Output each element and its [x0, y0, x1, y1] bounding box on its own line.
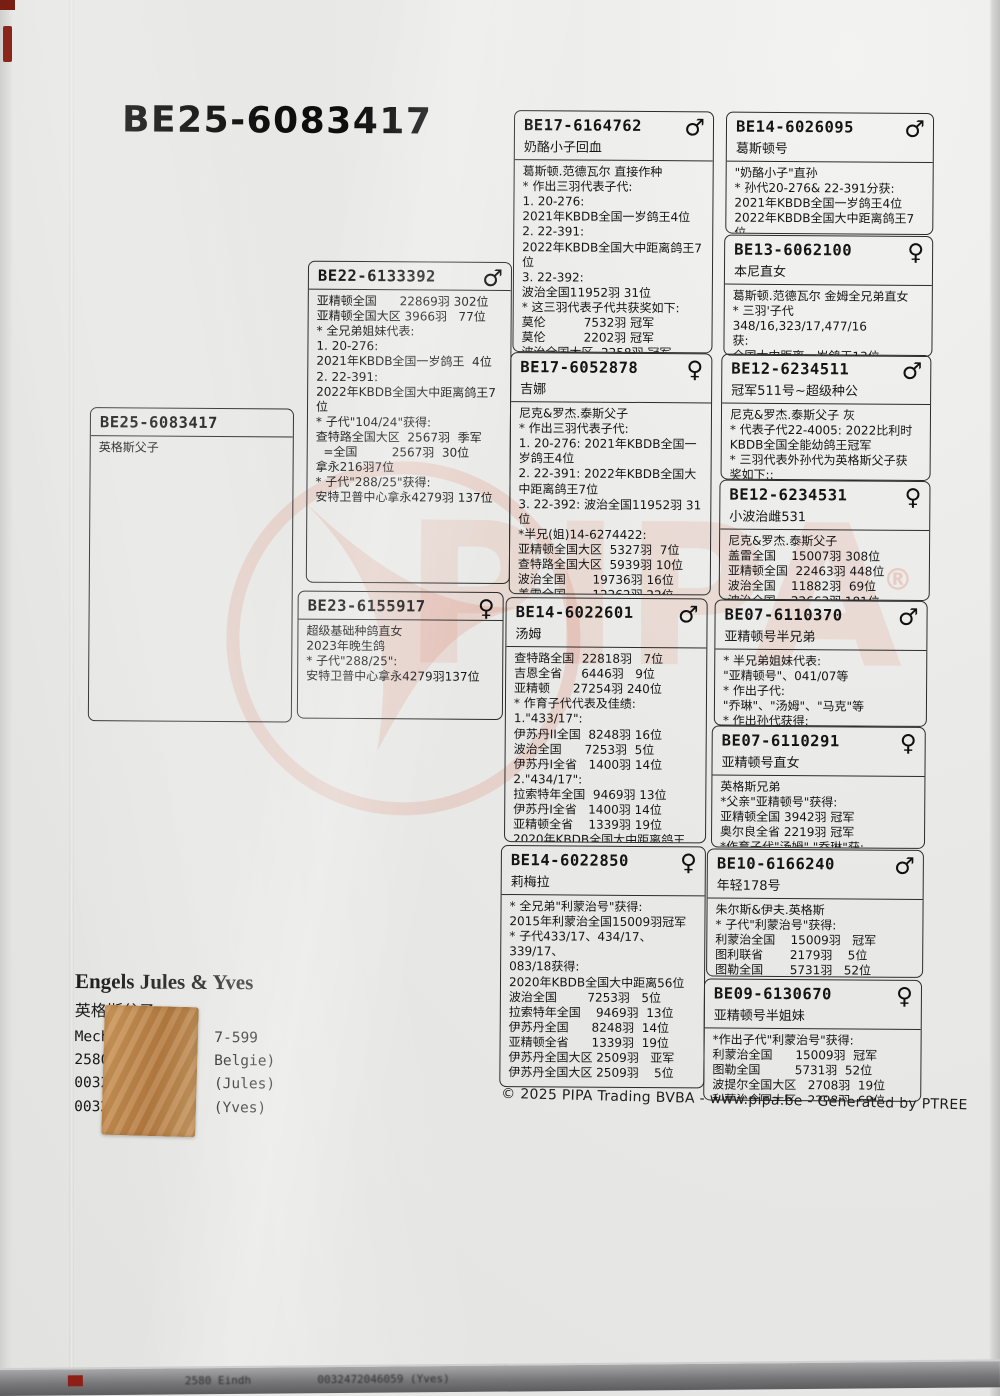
owner-name: Engels Jules & Yves	[75, 969, 276, 995]
pedigree-box-g4-6: BE07-6110291 亚精顿号直女 ♀ 英格斯兄弟 *父亲"亚精顿号"获得:…	[711, 725, 926, 848]
ring-number: BE22-6133392	[318, 267, 477, 286]
pigeon-name: 亚精顿号半姐妹	[714, 1005, 887, 1025]
box-header: BE22-6133392 ♂	[309, 262, 511, 291]
pigeon-name: 小波治雌531	[729, 506, 895, 526]
pigeon-details: 尼克&罗杰.泰斯父子 灰 * 代表子代22-4005: 2022比利时 KBDB…	[721, 404, 930, 481]
female-symbol-icon: ♀	[904, 487, 921, 510]
pigeon-details: 尼克&罗杰.泰斯父子 盖雷全国 15007羽 308位 亚精顿全国 22463羽…	[720, 530, 930, 601]
pigeon-details: 英格斯父子	[91, 436, 293, 462]
pedigree-box-dam: BE23-6155917 ♀ 超级基础种鸽直女 2023年晚生鸽 * 子代"28…	[297, 591, 504, 720]
ring-number: BE09-6130670	[714, 985, 887, 1004]
pigeon-details: 超级基础种鸽直女 2023年晚生鸽 * 子代"288/25": 安特卫普中心拿永…	[298, 620, 502, 691]
box-header: BE14-6022601 汤姆 ♂	[506, 598, 706, 648]
female-symbol-icon: ♀	[478, 598, 495, 621]
pigeon-name: 冠军511号~超级种公	[731, 380, 896, 400]
photo-edge-left	[0, 0, 13, 1396]
female-symbol-icon: ♀	[680, 852, 697, 875]
box-header: BE09-6130670 亚精顿号半姐妹 ♀	[705, 979, 921, 1030]
female-symbol-icon: ♀	[907, 242, 924, 265]
pigeon-name: 本尼直女	[734, 261, 898, 281]
ring-number: BE17-6052878	[520, 358, 677, 377]
box-header: BE07-6110291 亚精顿号直女 ♀	[712, 726, 924, 776]
pigeon-name: 葛斯顿号	[736, 138, 899, 158]
male-symbol-icon: ♂	[482, 268, 503, 291]
pedigree-photo: PIPA ® BE25-6083417 BE25-6083417 英格斯父子 B…	[0, 0, 1000, 1396]
pigeon-name: 亚精顿号半兄弟	[724, 626, 892, 646]
box-header: BE25-6083417	[91, 408, 293, 437]
red-mark-bottom	[68, 1375, 83, 1386]
male-symbol-icon: ♂	[898, 607, 919, 630]
pigeon-name: 奶酪小子回血	[524, 136, 679, 156]
ring-number: BE10-6166240	[717, 855, 889, 874]
pigeon-name: 年轻178号	[717, 875, 889, 895]
pedigree-box-g3-2: BE17-6052878 吉娜 ♀ 尼克&罗杰.泰斯父子 * 作出三羽代表子代:…	[509, 352, 713, 595]
ring-number: BE07-6110370	[725, 606, 893, 625]
box-header: BE23-6155917 ♀	[299, 592, 503, 621]
ring-number: BE07-6110291	[722, 732, 891, 751]
box-header: BE14-6026095 葛斯顿号 ♂	[727, 113, 933, 163]
female-symbol-icon: ♀	[900, 733, 917, 756]
pedigree-box-subject: BE25-6083417 英格斯父子	[88, 407, 294, 722]
photo-edge-right	[989, 0, 1000, 1396]
box-header: BE17-6164762 奶酪小子回血 ♂	[515, 111, 713, 161]
ring-number: BE17-6164762	[524, 116, 679, 135]
female-symbol-icon: ♀	[686, 359, 703, 382]
underlying-document-text: 2580 Eindh 0032472046059 (Yves)	[185, 1372, 450, 1387]
tape-sticker	[101, 1005, 199, 1138]
pigeon-name: 吉娜	[520, 378, 677, 398]
pigeon-details: 葛斯顿.范德瓦尔 直接作种 * 作出三羽代表子代: 1. 20-276: 202…	[513, 160, 713, 353]
pedigree-box-g3-1: BE17-6164762 奶酪小子回血 ♂ 葛斯顿.范德瓦尔 直接作种 * 作出…	[512, 110, 714, 353]
box-header: BE07-6110370 亚精顿号半兄弟 ♂	[715, 601, 926, 651]
ring-number: BE12-6234511	[731, 360, 896, 379]
male-symbol-icon: ♂	[902, 361, 923, 384]
male-symbol-icon: ♂	[894, 856, 915, 879]
ring-number: BE14-6022601	[516, 603, 673, 622]
pedigree-box-g4-4: BE12-6234531 小波治雌531 ♀ 尼克&罗杰.泰斯父子 盖雷全国 1…	[719, 480, 931, 601]
pedigree-box-g4-3: BE12-6234511 冠军511号~超级种公 ♂ 尼克&罗杰.泰斯父子 灰 …	[721, 354, 932, 481]
box-header: BE10-6166240 年轻178号 ♂	[708, 849, 923, 899]
box-header: BE12-6234531 小波治雌531 ♀	[720, 481, 929, 531]
female-symbol-icon: ♀	[896, 986, 913, 1009]
box-header: BE17-6052878 吉娜 ♀	[511, 353, 711, 403]
red-mark-top	[0, 0, 15, 10]
pigeon-name: 莉梅拉	[511, 871, 671, 891]
pedigree-box-g3-4: BE14-6022850 莉梅拉 ♀ * 全兄弟"利蒙治号"获得: 2015年利…	[499, 845, 706, 1088]
pigeon-details: "奶酪小子"直孙 * 孙代20-276& 22-391分获: 2021年KBDB…	[726, 162, 933, 235]
pigeon-name: 亚精顿号直女	[721, 752, 890, 772]
pigeon-details: 亚精顿全国 22869羽 302位 亚精顿全国大区 3966羽 77位 * 全兄…	[307, 290, 511, 512]
box-header: BE13-6062100 本尼直女 ♀	[725, 236, 932, 286]
ring-number: BE14-6026095	[736, 118, 899, 137]
box-header: BE12-6234511 冠军511号~超级种公 ♂	[722, 355, 930, 405]
pigeon-details: 尼克&罗杰.泰斯父子 * 作出三羽代表子代: 1. 20-276: 2021年K…	[510, 402, 711, 595]
ring-number: BE23-6155917	[308, 597, 469, 616]
male-symbol-icon: ♂	[904, 119, 925, 142]
pigeon-details: * 全兄弟"利蒙治号"获得: 2015年利蒙治全国15009羽冠军 * 子代43…	[500, 895, 704, 1087]
pigeon-details: 查特路全国 22818羽 7位 吉恩全省 6446羽 9位 亚精顿 27254羽…	[505, 647, 707, 843]
ring-number: BE13-6062100	[734, 241, 898, 260]
male-symbol-icon: ♂	[678, 604, 699, 627]
pigeon-details: 英格斯兄弟 *父亲"亚精顿号"获得: 亚精顿全国 3942羽 冠军 奥尔良全省 …	[712, 775, 925, 848]
pedigree-paper: PIPA ® BE25-6083417 BE25-6083417 英格斯父子 B…	[0, 0, 1000, 1396]
ring-number: BE25-6083417	[100, 413, 259, 432]
pedigree-box-sire: BE22-6133392 ♂ 亚精顿全国 22869羽 302位 亚精顿全国大区…	[306, 261, 512, 584]
ring-number: BE12-6234531	[729, 486, 895, 505]
pedigree-box-g4-1: BE14-6026095 葛斯顿号 ♂ "奶酪小子"直孙 * 孙代20-276&…	[725, 112, 934, 235]
pigeon-details: 朱尔斯&伊夫.英格斯 * 子代"利蒙治号"获得: 利蒙治全国 15009羽 冠军…	[707, 898, 923, 978]
page-title: BE25-6083417	[122, 99, 433, 142]
ring-number: BE14-6022850	[511, 851, 671, 870]
pedigree-box-g4-2: BE13-6062100 本尼直女 ♀ 葛斯顿.范德瓦尔 金姆全兄弟直女 * 三…	[723, 235, 933, 357]
pedigree-box-g4-5: BE07-6110370 亚精顿号半兄弟 ♂ * 半兄弟姐妹代表: "亚精顿号"…	[714, 599, 928, 726]
pedigree-box-g3-3: BE14-6022601 汤姆 ♂ 查特路全国 22818羽 7位 吉恩全省 6…	[504, 597, 708, 843]
pigeon-details: 葛斯顿.范德瓦尔 金姆全兄弟直女 * 三羽'子代348/16,323/17,47…	[724, 285, 932, 357]
pigeon-name: 汤姆	[515, 623, 672, 643]
red-mark-left	[3, 26, 12, 62]
pedigree-box-g4-7: BE10-6166240 年轻178号 ♂ 朱尔斯&伊夫.英格斯 * 子代"利蒙…	[706, 848, 924, 978]
male-symbol-icon: ♂	[684, 117, 705, 140]
pigeon-details: * 半兄弟姐妹代表: "亚精顿号"、041/07等 * 作出子代: "乔琳"、"…	[715, 650, 927, 727]
pedigree-box-g4-8: BE09-6130670 亚精顿号半姐妹 ♀ *作出子代"利蒙治号"获得: 利蒙…	[703, 978, 922, 1102]
box-header: BE14-6022850 莉梅拉 ♀	[502, 846, 705, 896]
